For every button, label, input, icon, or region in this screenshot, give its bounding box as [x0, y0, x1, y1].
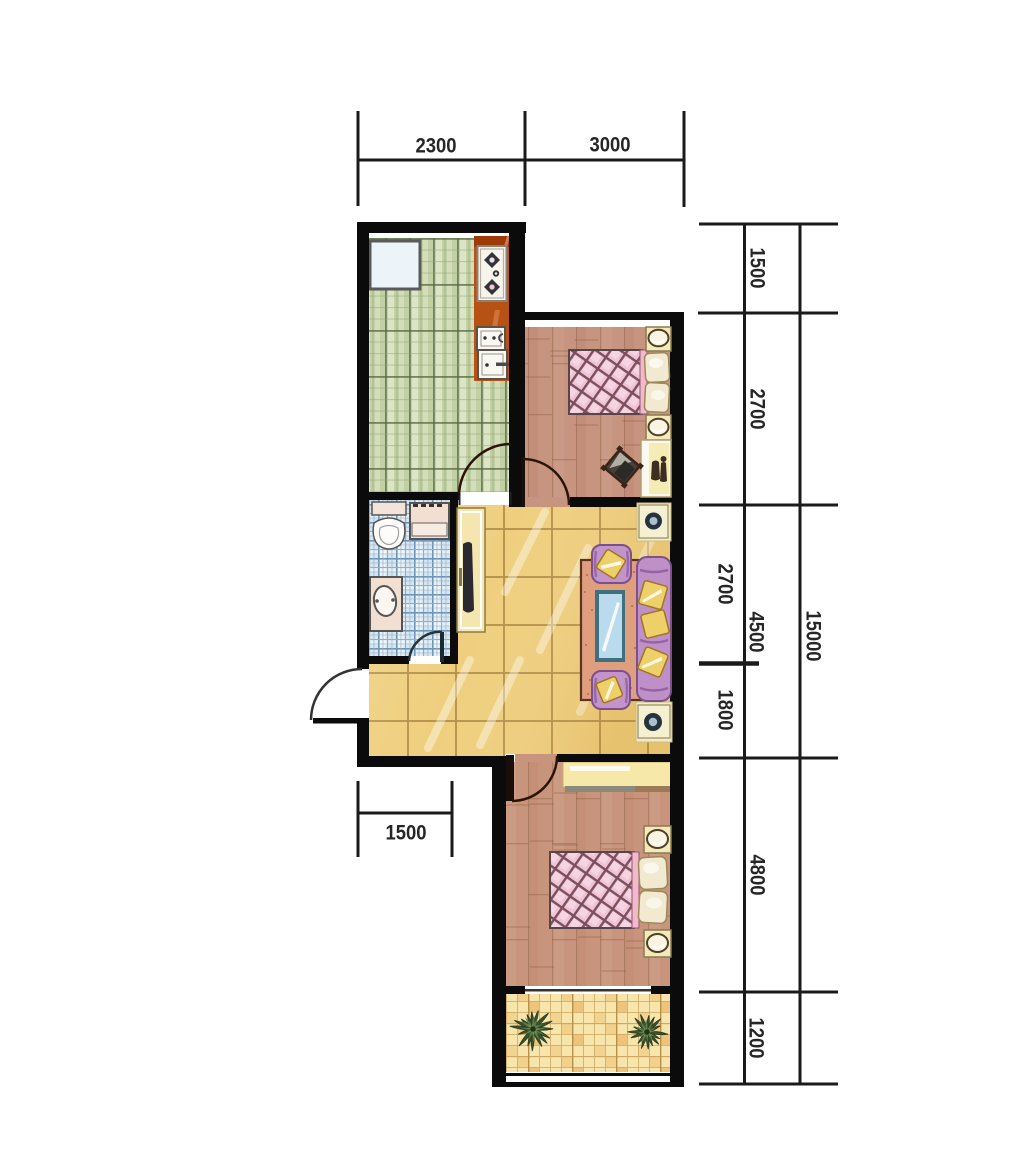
svg-text:1500: 1500	[386, 822, 427, 845]
svg-text:2700: 2700	[714, 564, 737, 605]
svg-text:1200: 1200	[745, 1018, 768, 1059]
svg-text:4800: 4800	[746, 855, 769, 896]
svg-text:1800: 1800	[714, 690, 737, 731]
svg-text:3000: 3000	[590, 134, 631, 157]
svg-text:2700: 2700	[746, 389, 769, 430]
svg-text:2300: 2300	[416, 135, 457, 158]
svg-text:4500: 4500	[745, 612, 768, 653]
svg-text:1500: 1500	[746, 248, 769, 289]
svg-text:15000: 15000	[802, 611, 825, 662]
